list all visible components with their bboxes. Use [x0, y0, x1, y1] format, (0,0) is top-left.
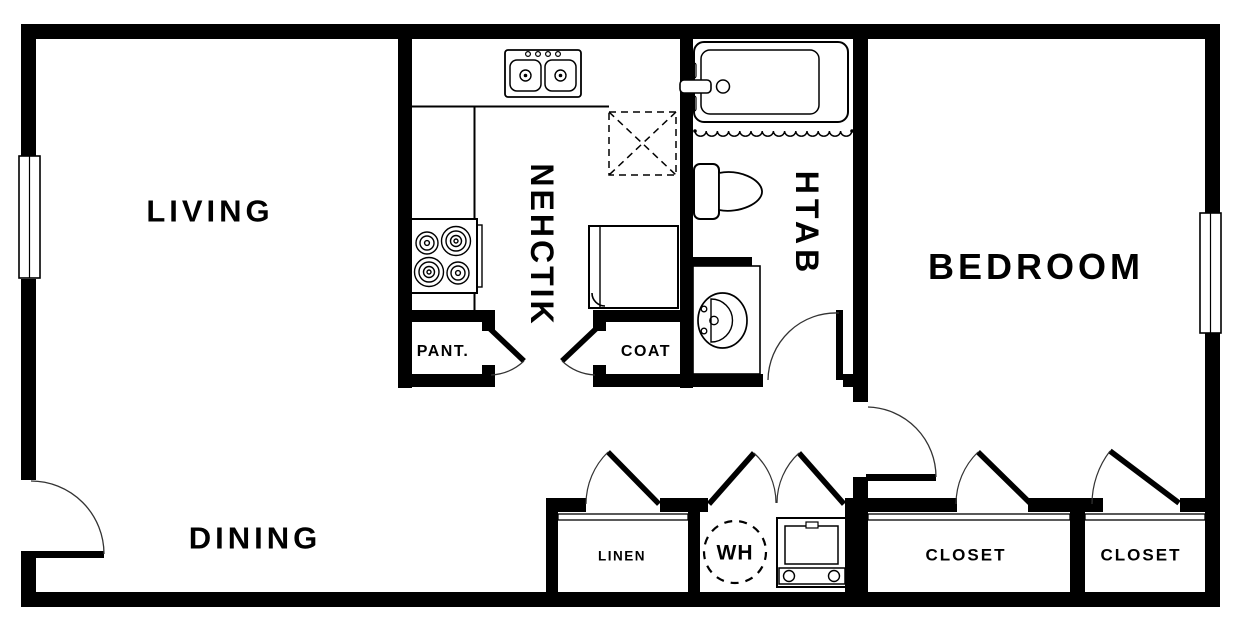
- vanity-sink-inner: [711, 299, 733, 342]
- closet-shelves: [558, 514, 1205, 520]
- closet-left-door-leaf: [978, 452, 1030, 503]
- wh-double-doors: [709, 453, 844, 504]
- vanity-faucet-knob-top: [701, 306, 707, 312]
- bath-door-swing-arc: [768, 313, 839, 380]
- wall-closet-right-top-a: [1085, 498, 1103, 512]
- wh-door-right-swing-arc: [777, 453, 799, 503]
- toilet-bowl: [719, 172, 762, 211]
- wall-exterior-left-lower: [21, 551, 36, 607]
- coat-door-swing-arc: [562, 361, 595, 375]
- overhead-cabinet-cross: [609, 112, 676, 175]
- shower-curtain-end-left: [693, 129, 697, 133]
- kitchen-sink-knob-4: [556, 52, 561, 57]
- washer-knob-left: [784, 571, 795, 582]
- room-label-pantry: PANT.: [417, 344, 470, 360]
- wall-vanity-stub: [690, 257, 752, 266]
- room-label-bath: HTAB: [791, 171, 823, 278]
- wall-exterior-top: [21, 24, 1220, 39]
- bath-fixtures: [680, 42, 854, 374]
- closet-right-shelf-line: [1085, 514, 1205, 520]
- toilet-tank: [694, 164, 719, 219]
- bathtub-spout: [680, 80, 711, 93]
- wall-bath-south: [593, 374, 763, 387]
- wall-coat-stub-bottom: [593, 365, 606, 374]
- window-left: [19, 156, 40, 278]
- wh-door-right-leaf: [799, 453, 844, 504]
- wall-exterior-right-upper: [1205, 24, 1220, 214]
- overhead-cabinet-icon: [609, 112, 676, 175]
- wall-linen-top-right: [660, 498, 708, 512]
- washer-knob-right: [829, 571, 840, 582]
- window-right: [1200, 213, 1221, 333]
- range-icon: [411, 219, 482, 293]
- range-body: [411, 219, 477, 293]
- closet-left-door: [956, 452, 1030, 504]
- room-label-coat: COAT: [621, 344, 671, 360]
- bath-door: [768, 310, 843, 380]
- entry-door-leaf: [34, 551, 104, 558]
- wh-door-left-swing-arc: [754, 453, 776, 503]
- room-label-closet-right: CLOSET: [1101, 547, 1182, 564]
- wall-linen-left: [546, 498, 558, 592]
- windows: [19, 156, 1221, 333]
- wall-kitchen-bath: [680, 24, 693, 388]
- closet-right-door: [1092, 451, 1179, 504]
- wall-closet-left-top-b: [1028, 498, 1070, 512]
- wall-pantry-stub-bottom: [482, 365, 495, 374]
- coat-door-leaf: [562, 325, 600, 361]
- toilet-icon: [694, 164, 762, 219]
- room-label-closet-left: CLOSET: [926, 547, 1007, 564]
- linen-door: [586, 452, 659, 504]
- kitchen-sink-icon: [505, 50, 581, 97]
- wall-linen-right: [688, 512, 700, 592]
- bath-door-leaf: [836, 310, 843, 380]
- shower-curtain-end-right: [850, 129, 854, 133]
- linen-shelf-line: [558, 514, 688, 520]
- wall-coat-top: [593, 310, 680, 322]
- wall-bath-bedroom-lower: [853, 477, 868, 592]
- entry-door-swing-arc: [31, 481, 104, 554]
- range-burners: [415, 227, 471, 287]
- vanity-faucet-knob-bottom: [701, 328, 707, 334]
- bedroom-door: [866, 407, 936, 481]
- wall-bath-bedroom-upper: [853, 24, 868, 402]
- kitchen-sink-knob-2: [536, 52, 541, 57]
- refrigerator-icon: [589, 226, 678, 308]
- room-label-water-heater: WH: [717, 543, 754, 564]
- closet-right-door-leaf: [1110, 451, 1179, 503]
- wall-between-closets: [1070, 498, 1085, 592]
- bathtub-drain: [717, 80, 730, 93]
- bedroom-door-leaf: [866, 474, 936, 481]
- vanity-sink-icon: [693, 266, 760, 374]
- wall-closet-right-top-b: [1180, 498, 1205, 512]
- shower-curtain-wave: [695, 131, 852, 136]
- kitchen-sink-knob-1: [526, 52, 531, 57]
- kitchen-sink-drain-right-dot: [559, 74, 563, 78]
- linen-door-swing-arc: [586, 452, 608, 504]
- wh-door-left-leaf: [709, 453, 754, 504]
- closet-right-door-swing-arc: [1092, 451, 1110, 504]
- pantry-door-swing-arc: [491, 361, 524, 375]
- bedroom-door-swing-arc: [868, 407, 936, 477]
- wall-exterior-bottom: [21, 592, 1220, 607]
- room-label-bedroom: BEDROOM: [928, 249, 1144, 285]
- wall-pantry-bottom: [398, 374, 495, 387]
- refrigerator-body: [589, 226, 678, 308]
- kitchen-sink-drain-left-dot: [524, 74, 528, 78]
- room-label-linen: LINEN: [598, 549, 646, 563]
- room-label-dining: DINING: [189, 523, 322, 554]
- floor-plan-drawing: [0, 0, 1240, 631]
- wall-linen-top-left: [546, 498, 586, 512]
- floor-plan: LIVING NEHCTIK HTAB BEDROOM DINING PANT.…: [0, 0, 1240, 631]
- wall-exterior-right-lower: [1205, 332, 1220, 607]
- vanity-counter: [693, 266, 760, 374]
- bathtub-icon: [680, 42, 848, 122]
- wall-bath-south-stub: [843, 374, 868, 387]
- washer-lid-latch: [806, 522, 818, 528]
- washer-icon: [777, 518, 847, 587]
- wall-closet-left-top-a: [868, 498, 957, 512]
- kitchen-sink-rim: [505, 50, 581, 97]
- wall-pantry-top: [398, 310, 495, 322]
- entry-door: [31, 481, 104, 558]
- room-label-living: LIVING: [146, 196, 273, 227]
- room-label-kitchen: NEHCTIK: [526, 163, 558, 326]
- closet-left-shelf-line: [868, 514, 1070, 520]
- wall-living-kitchen: [398, 24, 412, 388]
- wall-exterior-left-middle: [21, 279, 36, 480]
- linen-door-leaf: [608, 452, 659, 504]
- washer-lid: [785, 526, 838, 564]
- pantry-door-leaf: [486, 325, 524, 361]
- kitchen-sink-knob-3: [546, 52, 551, 57]
- closet-left-door-swing-arc: [956, 452, 978, 504]
- vanity-sink-outer: [698, 293, 747, 348]
- bathtub-rim: [694, 42, 848, 122]
- refrigerator-handle: [592, 293, 605, 306]
- wall-exterior-left-upper: [21, 24, 36, 156]
- shower-curtain-icon: [693, 129, 854, 136]
